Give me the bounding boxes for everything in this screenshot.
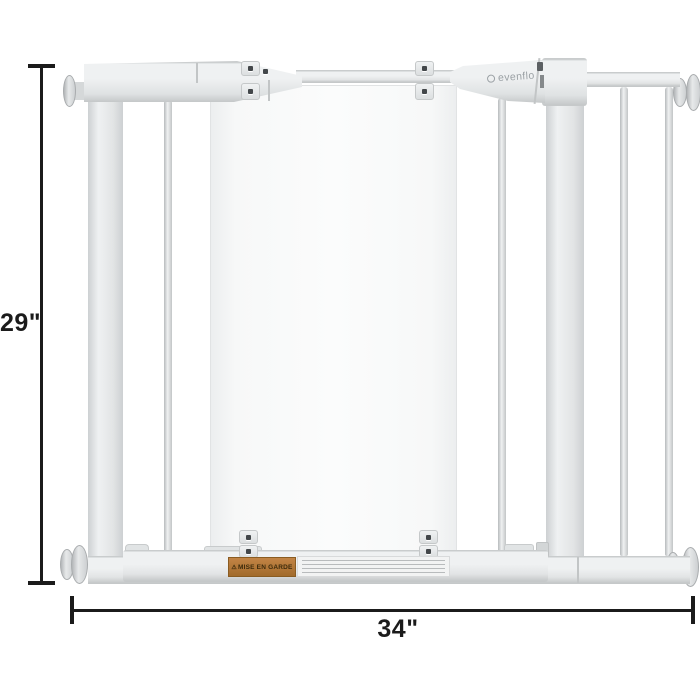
panel-clip-top-left-upper [241, 61, 260, 76]
gate-vertical-bar-right-2 [665, 87, 673, 556]
gate-vertical-bar-mid-right [498, 98, 506, 556]
gate-vertical-bar-right-1 [620, 87, 628, 556]
evenflo-logo-mark-icon [487, 74, 496, 83]
height-dimension-label: 29" [0, 309, 37, 338]
gate-left-post [88, 76, 123, 578]
wall-mount-disc-top-left [63, 75, 76, 107]
panel-clip-bottom-right-upper [419, 530, 438, 544]
frame-top-rail-right [584, 72, 680, 87]
gate-right-post [546, 60, 584, 580]
height-dimension-cap-bottom [28, 581, 55, 585]
hinge-slit-rear [268, 80, 270, 101]
fineprint-label [297, 556, 450, 577]
brand-logo-text: evenflo [498, 70, 535, 85]
hinge-screw [263, 69, 268, 74]
screw [422, 66, 427, 71]
panel-clip-top-right-upper [415, 61, 434, 76]
warning-label: ⚠ MISE EN GARDE [228, 557, 296, 577]
fineprint-text-lines [302, 560, 445, 573]
screw [246, 549, 251, 554]
gate-right-post-cap [542, 58, 587, 106]
width-dimension-label: 34" [328, 615, 468, 644]
screw [426, 549, 431, 554]
hinge-slit-front [196, 63, 198, 83]
screw [422, 89, 427, 94]
screw [426, 535, 431, 540]
product-dimension-image: 29" 34" [0, 0, 700, 700]
wall-mount-disc-top-right-outer [686, 74, 700, 111]
bottom-rail-seam [577, 557, 579, 583]
panel-clip-bottom-left-upper [239, 530, 258, 544]
panel-clip-top-right-lower [415, 83, 434, 100]
gate-vertical-bar-left [164, 100, 172, 556]
width-dimension-cap-left [70, 596, 74, 624]
panel-clip-top-left-lower [241, 83, 260, 100]
screw [248, 66, 253, 71]
height-dimension-cap-top [28, 64, 55, 68]
gate-clear-panel [210, 85, 457, 556]
screw [246, 535, 251, 540]
screw [248, 89, 253, 94]
width-dimension-cap-right [691, 596, 695, 624]
warning-label-text: MISE EN GARDE [238, 564, 293, 571]
width-dimension-line [72, 609, 694, 612]
wall-mount-disc-bottom-left-outer [71, 545, 88, 584]
warning-triangle-icon: ⚠ [231, 564, 237, 571]
